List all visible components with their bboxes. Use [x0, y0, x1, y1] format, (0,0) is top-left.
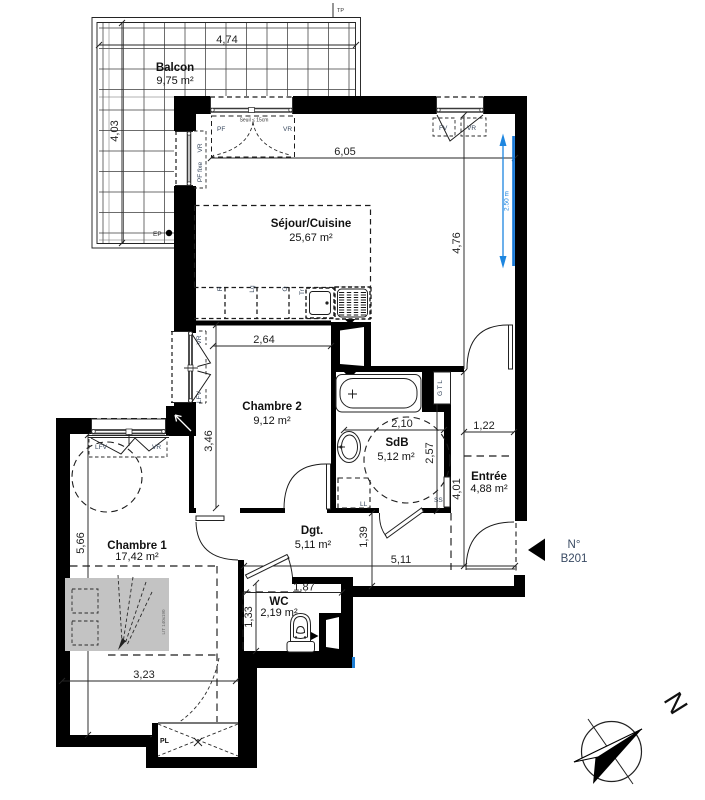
svg-text:1,87: 1,87	[293, 582, 314, 594]
svg-text:4,01: 4,01	[451, 478, 463, 499]
svg-text:Entrée: Entrée	[471, 471, 507, 483]
svg-text:4,76: 4,76	[451, 232, 463, 253]
svg-text:VR: VR	[197, 143, 204, 152]
svg-text:B201: B201	[561, 553, 588, 565]
svg-text:SdB: SdB	[386, 437, 409, 449]
svg-text:6,05: 6,05	[334, 146, 355, 158]
svg-text:SS: SS	[434, 497, 443, 504]
svg-text:Chambre 2: Chambre 2	[242, 401, 301, 413]
svg-text:1,39: 1,39	[358, 526, 370, 547]
svg-text:Séjour/Cuisine: Séjour/Cuisine	[271, 218, 352, 230]
svg-text:TP: TP	[337, 8, 344, 14]
svg-text:Seuil ≤ 15cm: Seuil ≤ 15cm	[240, 118, 269, 124]
svg-text:LFV: LFV	[196, 390, 203, 403]
svg-text:PL: PL	[160, 738, 170, 745]
svg-text:5,66: 5,66	[75, 532, 87, 553]
svg-text:Dgt.: Dgt.	[301, 525, 323, 537]
svg-text:LIT 140x190: LIT 140x190	[161, 609, 166, 634]
svg-text:5,12 m²: 5,12 m²	[377, 451, 415, 463]
svg-text:Balcon: Balcon	[156, 62, 194, 74]
svg-text:PF: PF	[217, 126, 225, 133]
svg-text:R: R	[217, 286, 224, 291]
svg-text:5,11 m²: 5,11 m²	[295, 539, 332, 551]
svg-text:VR: VR	[152, 444, 161, 451]
svg-text:3,46: 3,46	[203, 430, 215, 451]
svg-text:2,10: 2,10	[391, 418, 412, 430]
svg-text:9,75 m²: 9,75 m²	[156, 75, 194, 87]
svg-text:4,88 m²: 4,88 m²	[470, 483, 508, 495]
svg-text:17,42 m²: 17,42 m²	[115, 551, 159, 563]
svg-text:2,64: 2,64	[253, 334, 274, 346]
svg-text:EP: EP	[153, 231, 162, 238]
svg-text:Tr: Tr	[299, 288, 306, 295]
svg-text:1,33: 1,33	[243, 606, 255, 627]
svg-text:1,22: 1,22	[473, 420, 494, 432]
svg-text:2.50 m: 2.50 m	[504, 191, 511, 211]
svg-text:9,12 m²: 9,12 m²	[253, 415, 291, 427]
svg-text:25,67 m²: 25,67 m²	[289, 232, 333, 244]
svg-text:G T L: G T L	[437, 380, 444, 396]
svg-text:PF fixe: PF fixe	[197, 162, 204, 183]
svg-text:O: O	[282, 286, 289, 291]
svg-text:5,11: 5,11	[391, 554, 412, 566]
svg-text:VR: VR	[283, 126, 292, 133]
svg-text:N°: N°	[568, 539, 581, 551]
svg-text:LFV: LFV	[95, 444, 108, 451]
svg-text:VR: VR	[196, 335, 203, 344]
svg-text:3,23: 3,23	[133, 669, 154, 681]
svg-text:Lg: Lg	[249, 285, 256, 293]
svg-text:4,74: 4,74	[216, 34, 237, 46]
svg-text:2,57: 2,57	[424, 442, 436, 463]
svg-text:4,03: 4,03	[109, 120, 121, 141]
svg-text:LL: LL	[360, 501, 368, 508]
